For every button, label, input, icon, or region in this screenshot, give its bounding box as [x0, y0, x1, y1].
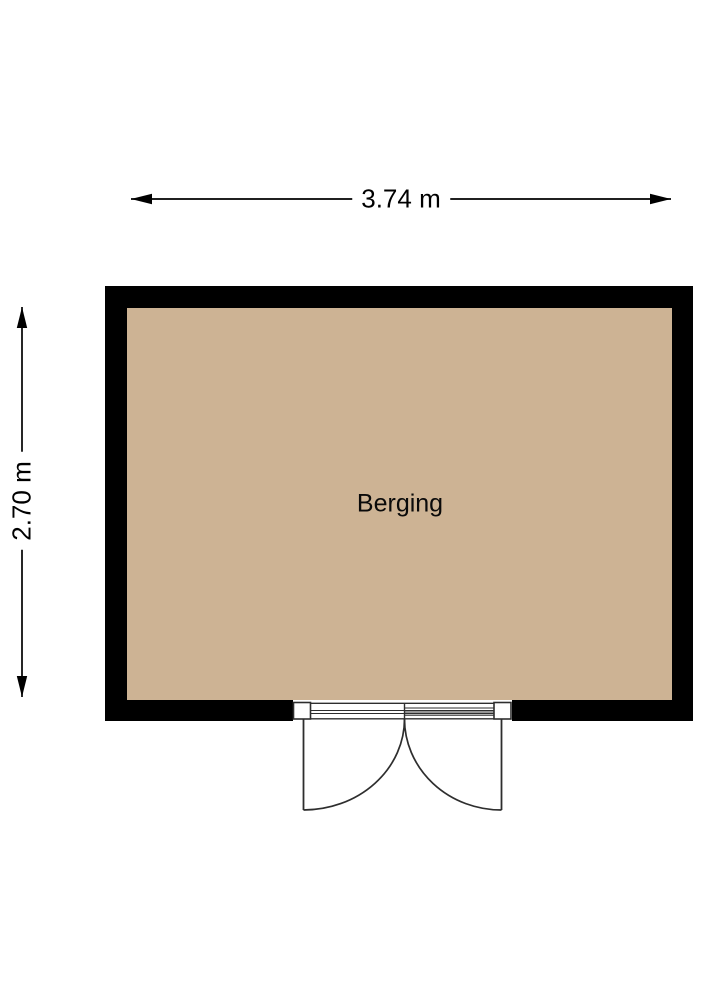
wall-top — [105, 286, 693, 308]
door-swing-arc-left — [304, 719, 405, 810]
room-label: Berging — [357, 490, 443, 519]
dimension-label-width: 3.74 m — [352, 185, 450, 214]
wall-bottom-right — [512, 700, 693, 721]
arrowhead-down-icon — [17, 676, 27, 697]
door-swing-arc-right — [405, 719, 502, 810]
floorplan-drawing — [0, 0, 707, 1000]
wall-right — [672, 286, 693, 721]
floorplan-canvas: 3.74 m 2.70 m Berging — [0, 0, 707, 1000]
arrowhead-left-icon — [131, 194, 152, 204]
arrowhead-up-icon — [17, 307, 27, 328]
wall-left — [105, 286, 127, 721]
double-door-symbol — [294, 703, 512, 811]
dimension-label-height: 2.70 m — [8, 452, 37, 550]
wall-bottom-left — [105, 700, 293, 721]
door-jamb-left — [294, 703, 311, 720]
door-jamb-right — [494, 703, 511, 720]
arrowhead-right-icon — [650, 194, 671, 204]
